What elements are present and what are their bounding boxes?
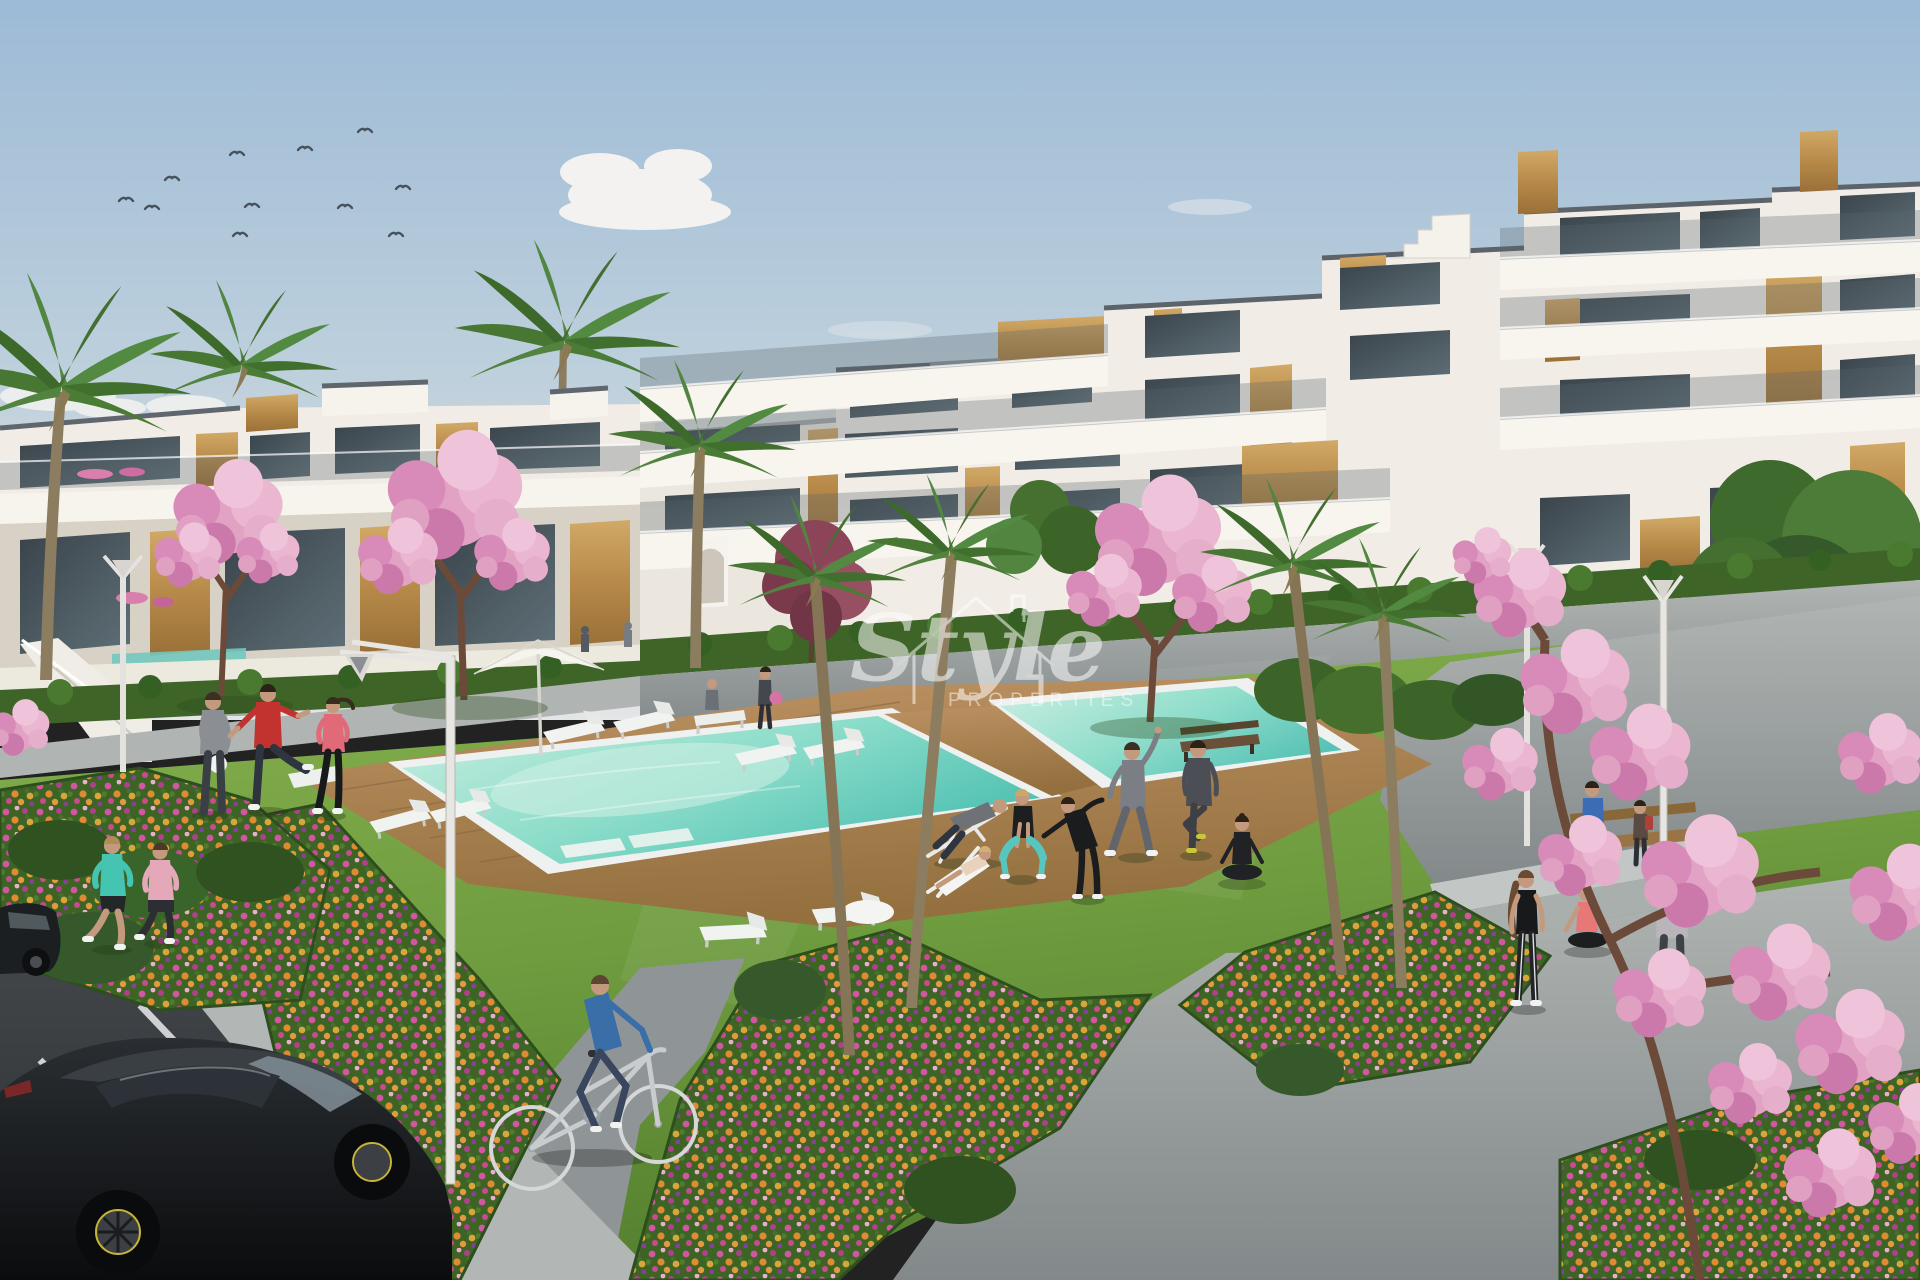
watermark-caps-text: PROPERTIES — [948, 690, 1140, 711]
property-render-image: Style PROPERTIES — [0, 0, 1920, 1280]
watermark-script-text: Style — [850, 594, 1106, 702]
render-canvas: Style PROPERTIES — [0, 0, 1920, 1280]
bench-sitter-small — [705, 679, 719, 710]
watermark-logo: Style PROPERTIES — [850, 594, 1140, 711]
parked-car-rear — [0, 903, 61, 976]
